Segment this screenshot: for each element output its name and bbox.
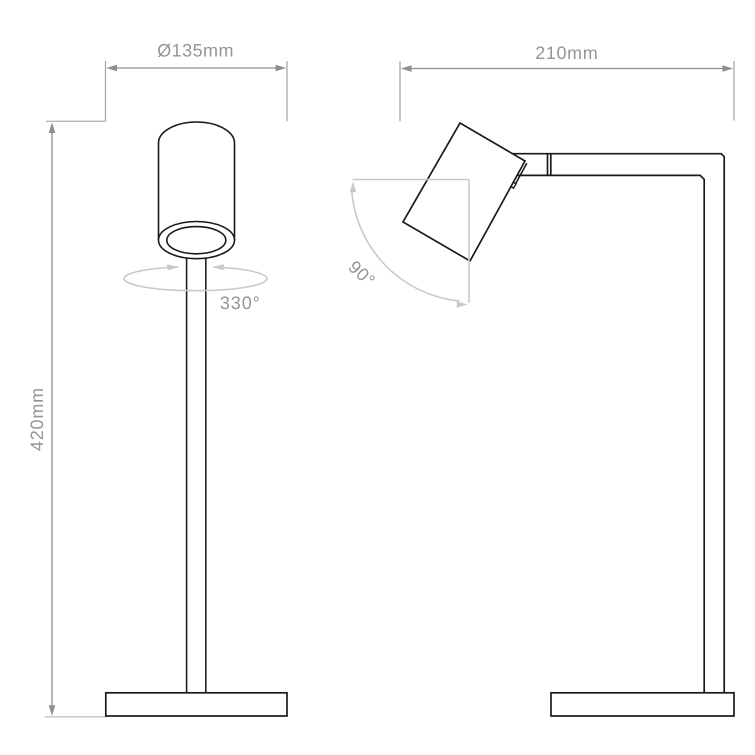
- svg-text:330°: 330°: [220, 293, 261, 313]
- svg-text:420mm: 420mm: [27, 387, 47, 451]
- svg-text:210mm: 210mm: [535, 43, 598, 63]
- svg-text:Ø135mm: Ø135mm: [157, 40, 234, 60]
- svg-text:90°: 90°: [344, 257, 379, 291]
